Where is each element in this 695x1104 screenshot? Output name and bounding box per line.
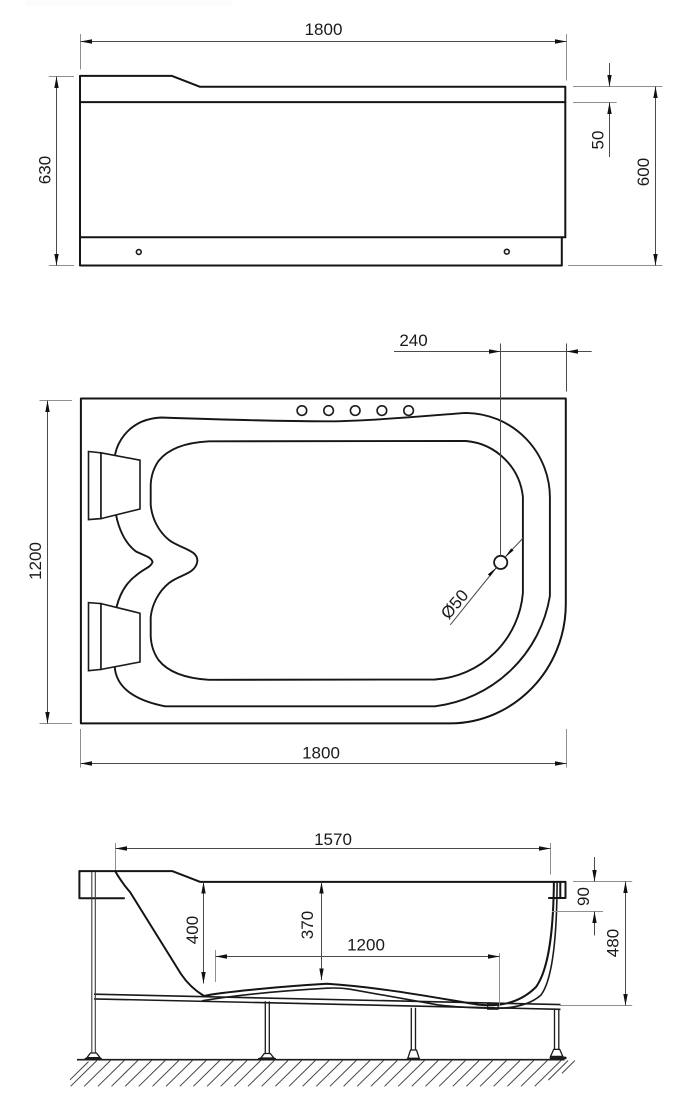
svg-text:630: 630: [36, 156, 55, 184]
svg-text:50: 50: [589, 131, 608, 150]
svg-text:1200: 1200: [347, 936, 385, 955]
svg-text:1800: 1800: [302, 744, 340, 763]
svg-text:480: 480: [604, 929, 623, 957]
svg-text:370: 370: [298, 911, 317, 939]
svg-text:90: 90: [574, 887, 593, 906]
svg-text:1200: 1200: [26, 542, 45, 580]
svg-text:1800: 1800: [305, 20, 343, 39]
svg-text:240: 240: [399, 331, 427, 350]
svg-text:1570: 1570: [314, 830, 352, 849]
svg-text:600: 600: [634, 158, 653, 186]
svg-text:400: 400: [183, 916, 202, 944]
